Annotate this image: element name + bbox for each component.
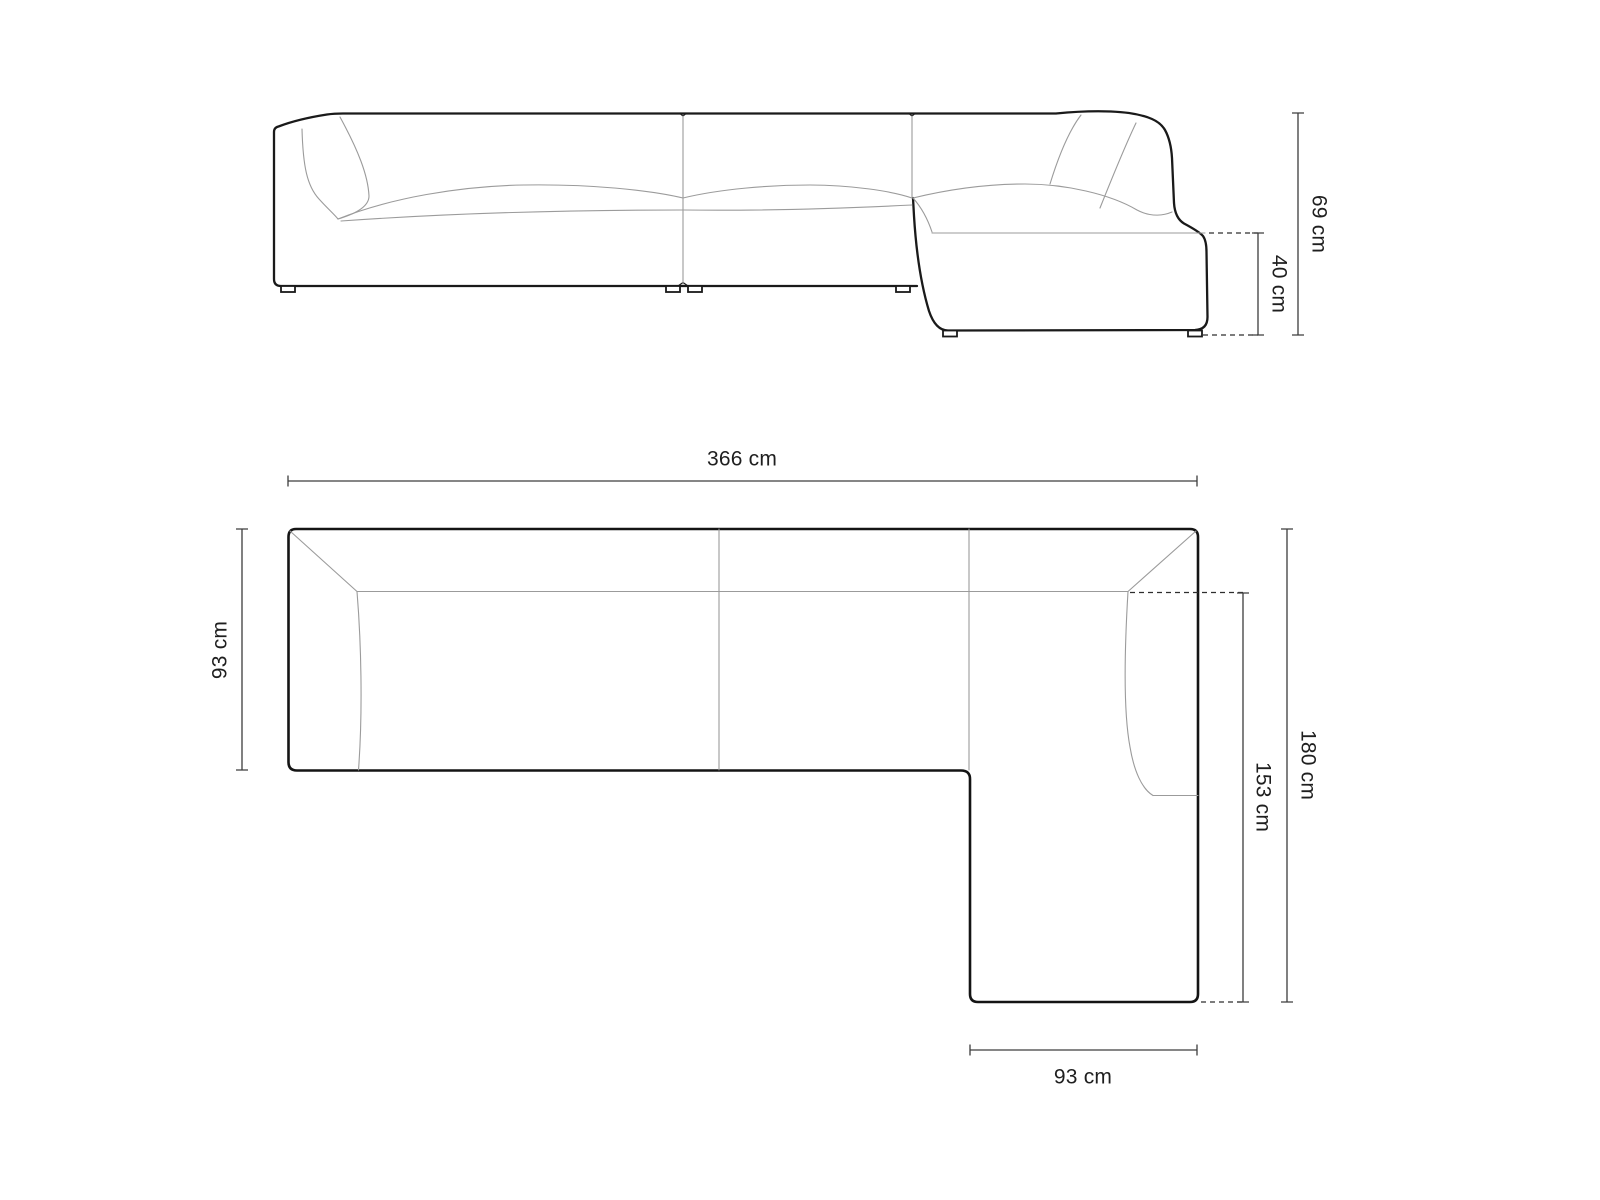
front-seat-reference-dashed [1203,233,1258,335]
dim-label-front-height: 69 cm [1309,195,1330,253]
front-view-drawing [274,111,1304,336]
front-seam-lines [302,115,1205,284]
front-sofa-silhouette [274,111,1208,330]
dim-label-seat-height: 40 cm [1269,255,1290,313]
dim-line-depth [236,529,248,770]
diagram-canvas [0,0,1600,1200]
sofa-dimension-diagram: 69 cm 40 cm 366 cm 93 cm 180 cm 153 cm 9… [0,0,1600,1200]
dim-label-depth: 93 cm [210,621,231,679]
front-sofa-feet [281,286,1202,337]
dim-line-front-height [1292,113,1304,335]
plan-seam-lines [290,529,1198,796]
dim-line-chaise-width [970,1045,1197,1056]
plan-chaise-reference-dashed [1130,593,1243,1003]
dim-label-chaise-width: 93 cm [1054,1067,1112,1088]
dim-line-front-seat-height [1252,233,1264,335]
top-view-drawing [236,476,1293,1056]
dim-label-right-length: 180 cm [1298,730,1319,800]
front-module-notches [678,114,915,287]
dim-label-chaise-length: 153 cm [1253,762,1274,832]
dim-label-total-width: 366 cm [707,449,777,470]
plan-sofa-outline [289,529,1199,1002]
dim-line-right-length [1281,529,1293,1002]
dim-line-total-width [288,476,1197,487]
dim-line-chaise-length [1237,593,1249,1002]
